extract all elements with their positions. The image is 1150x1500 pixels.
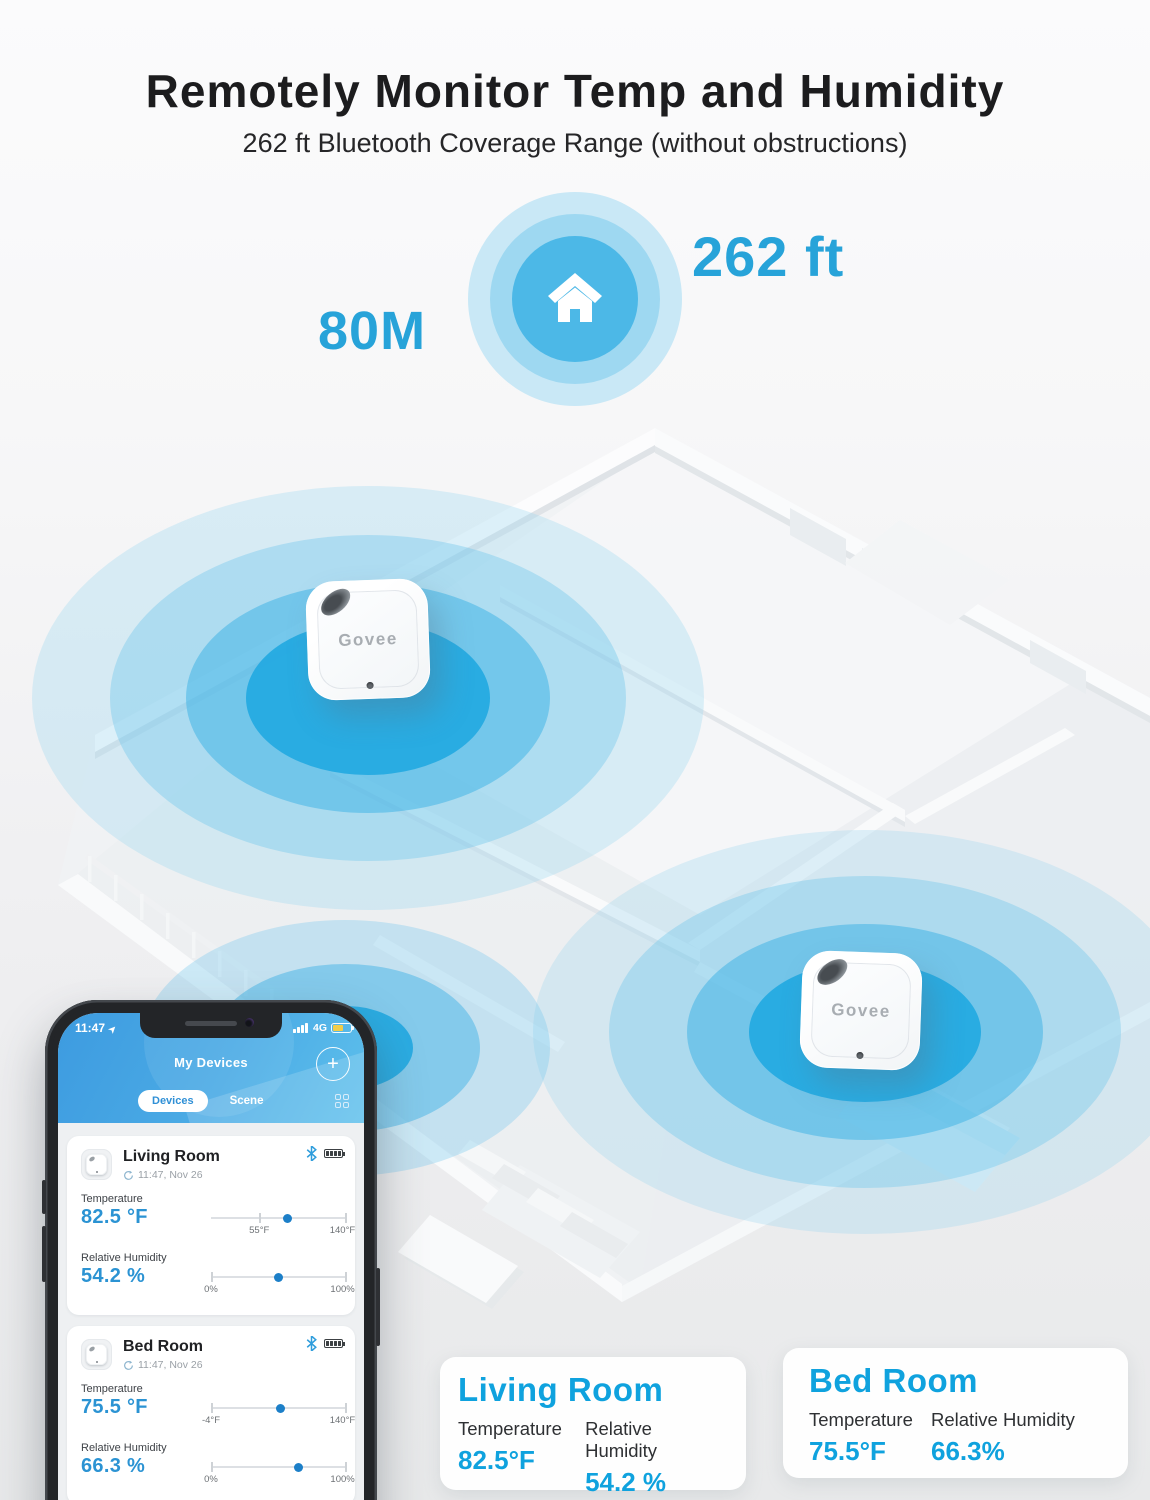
device-list: Living Room 11:47, Nov 26 Temperatu <box>58 1123 364 1500</box>
temperature-label: Temperature <box>81 1193 345 1205</box>
location-arrow-icon: ➤ <box>106 1023 119 1036</box>
speaker-slot <box>185 1021 237 1026</box>
summary-card-living-room: Living Room Temperature 82.5°F Relative … <box>440 1357 746 1490</box>
range-min-label: 0% <box>204 1474 218 1485</box>
status-time: 11:47➤ <box>75 1021 117 1035</box>
summary-temperature-label: Temperature <box>809 1409 931 1431</box>
sensor-vent-dot <box>856 1052 863 1059</box>
page-title: Remotely Monitor Temp and Humidity <box>0 64 1150 118</box>
product-infographic: Remotely Monitor Temp and Humidity 262 f… <box>0 0 1150 1500</box>
house-icon <box>545 268 605 328</box>
range-min-label: -4°F <box>202 1415 220 1426</box>
summary-temperature-label: Temperature <box>458 1418 585 1440</box>
volume-button <box>42 1180 46 1214</box>
temperature-label: Temperature <box>81 1383 345 1395</box>
summary-title: Bed Room <box>809 1362 1110 1400</box>
device-battery-icon <box>324 1339 343 1348</box>
temperature-range-slider[interactable]: -4°F 140°F <box>211 1398 345 1430</box>
tab-scene[interactable]: Scene <box>230 1095 264 1107</box>
slider-thumb[interactable] <box>283 1214 292 1223</box>
grid-view-icon[interactable] <box>335 1094 350 1109</box>
govee-sensor-bed-room: Govee <box>799 950 923 1071</box>
summary-humidity-value: 66.3% <box>931 1436 1075 1467</box>
temperature-value: 75.5 °F <box>81 1396 148 1419</box>
device-card-living-room[interactable]: Living Room 11:47, Nov 26 Temperatu <box>67 1136 355 1315</box>
device-name: Living Room <box>123 1148 220 1166</box>
summary-temperature-value: 75.5°F <box>809 1436 931 1467</box>
humidity-value: 66.3 % <box>81 1455 145 1478</box>
phone-mockup: 11:47➤ 4G My Devices + Devices Scene <box>45 1000 377 1500</box>
network-label: 4G <box>313 1022 327 1034</box>
humidity-range-slider[interactable]: 0% 100% <box>211 1267 345 1299</box>
summary-card-bed-room: Bed Room Temperature 75.5°F Relative Hum… <box>783 1348 1128 1478</box>
range-min-label: 0% <box>204 1284 218 1295</box>
bluetooth-icon <box>306 1146 317 1161</box>
range-min-label: 55°F <box>249 1225 269 1236</box>
range-max-label: 140°F <box>330 1225 355 1236</box>
range-max-label: 100% <box>330 1284 354 1295</box>
add-device-button[interactable]: + <box>316 1047 350 1081</box>
summary-humidity-value: 54.2 % <box>585 1467 728 1498</box>
humidity-value: 54.2 % <box>81 1265 145 1288</box>
sensor-vent-dot <box>366 682 373 689</box>
refresh-icon[interactable] <box>123 1360 134 1371</box>
sensor-thumbnail <box>81 1339 112 1370</box>
summary-humidity-label: Relative Humidity <box>585 1418 728 1462</box>
last-updated: 11:47, Nov 26 <box>138 1169 203 1181</box>
volume-button <box>42 1226 46 1282</box>
phone-screen: 11:47➤ 4G My Devices + Devices Scene <box>58 1013 364 1500</box>
summary-humidity-label: Relative Humidity <box>931 1409 1075 1431</box>
slider-thumb[interactable] <box>274 1273 283 1282</box>
govee-sensor-living-room: Govee <box>305 578 431 701</box>
coverage-label-metric: 80M <box>318 300 426 362</box>
tab-devices[interactable]: Devices <box>138 1090 208 1112</box>
range-max-label: 140°F <box>330 1415 355 1426</box>
humidity-label: Relative Humidity <box>81 1442 345 1454</box>
govee-logo: Govee <box>801 999 922 1023</box>
slider-thumb[interactable] <box>276 1404 285 1413</box>
temperature-range-slider[interactable]: 55°F 140°F <box>211 1208 345 1240</box>
front-camera <box>245 1018 254 1027</box>
page-subtitle: 262 ft Bluetooth Coverage Range (without… <box>0 128 1150 159</box>
slider-thumb[interactable] <box>294 1463 303 1472</box>
temperature-value: 82.5 °F <box>81 1206 148 1229</box>
last-updated: 11:47, Nov 26 <box>138 1359 203 1371</box>
power-button <box>376 1268 380 1346</box>
device-name: Bed Room <box>123 1338 203 1356</box>
device-card-bed-room[interactable]: Bed Room 11:47, Nov 26 Temperature <box>67 1326 355 1500</box>
refresh-icon[interactable] <box>123 1170 134 1181</box>
range-max-label: 100% <box>330 1474 354 1485</box>
humidity-label: Relative Humidity <box>81 1252 345 1264</box>
signal-bars-icon <box>293 1023 308 1033</box>
bluetooth-icon <box>306 1336 317 1351</box>
coverage-label-imperial: 262 ft <box>692 224 844 289</box>
govee-logo: Govee <box>307 628 430 652</box>
device-battery-icon <box>324 1149 343 1158</box>
battery-icon <box>331 1023 352 1034</box>
sensor-thumbnail <box>81 1149 112 1180</box>
humidity-range-slider[interactable]: 0% 100% <box>211 1457 345 1489</box>
summary-title: Living Room <box>458 1371 728 1409</box>
phone-notch <box>140 1013 282 1038</box>
summary-temperature-value: 82.5°F <box>458 1445 585 1476</box>
